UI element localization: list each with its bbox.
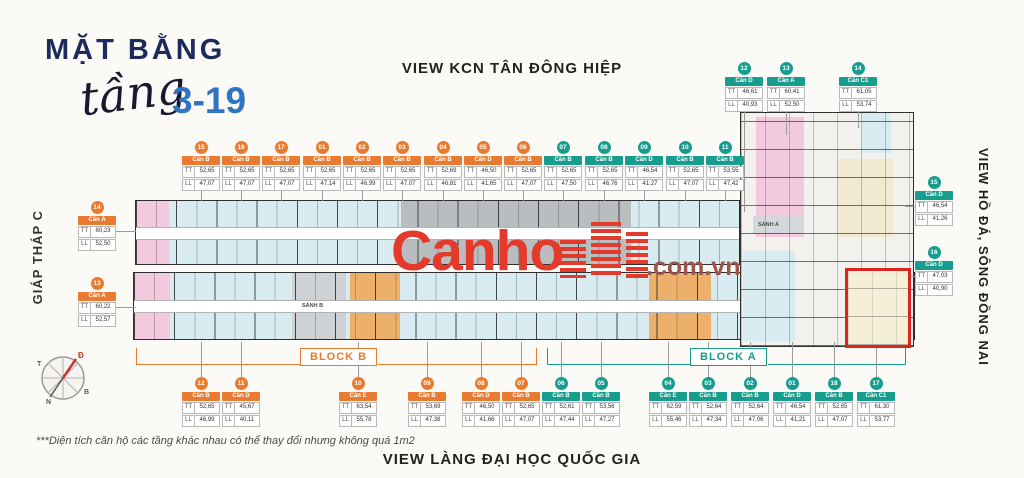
area-key: TT: [586, 167, 598, 177]
unit-area-row: TT52,65: [585, 166, 623, 178]
unit-area-row: TT46,54: [915, 201, 953, 213]
unit-number-badge: 15: [928, 176, 941, 189]
area-value: 53,74: [852, 101, 876, 111]
unit-label-11: 11Căn DTT45,67LL40,11: [222, 377, 260, 428]
unit-area-row: LL47,50: [544, 179, 582, 191]
unit-number-badge: 05: [595, 377, 608, 390]
area-key: TT: [816, 403, 828, 413]
area-value: 52,65: [275, 167, 299, 177]
area-key: TT: [768, 88, 780, 98]
area-key: TT: [465, 167, 477, 177]
connector-line: [241, 342, 242, 377]
unit-number-badge: 07: [515, 377, 528, 390]
unit-type: Căn E: [649, 392, 687, 401]
area-value: 55,46: [662, 416, 686, 426]
unit-number-badge: 07: [557, 141, 570, 154]
unit-number-badge: 09: [638, 141, 651, 154]
area-value: 52,65: [316, 167, 340, 177]
unit-type: Căn B: [343, 156, 381, 165]
area-value: 41,26: [928, 215, 952, 225]
unit-area-row: LL40,11: [222, 415, 260, 427]
area-key: TT: [79, 227, 91, 237]
unit-area-row: TT60,23: [78, 226, 116, 238]
unit-type: Căn D: [222, 392, 260, 401]
unit-number-badge: 15: [195, 141, 208, 154]
area-key: LL: [223, 416, 235, 426]
block-b-bracket: [378, 364, 536, 365]
area-value: 52,65: [396, 167, 420, 177]
area-value: 63,54: [352, 403, 376, 413]
area-value: 47,07: [195, 180, 219, 190]
compass-icon: Đ T N B: [34, 348, 92, 406]
area-value: 52,65: [356, 167, 380, 177]
area-value: 41,66: [475, 416, 499, 426]
area-key: TT: [626, 167, 638, 177]
area-key: TT: [583, 403, 595, 413]
unit-label-05: 05Căn BTT53,56LL47,27: [582, 377, 620, 428]
area-value: 41,27: [638, 180, 662, 190]
view-caption-bottom: VIEW LÀNG ĐẠI HỌC QUỐC GIA: [0, 451, 1024, 468]
unit-area-row: TT63,54: [339, 402, 377, 414]
area-key: LL: [409, 416, 421, 426]
area-value: 61,30: [870, 403, 894, 413]
area-value: 62,59: [662, 403, 686, 413]
unit-area-row: TT46,50: [462, 402, 500, 414]
area-value: 41,65: [477, 180, 501, 190]
unit-label-10: 10Căn ETT63,54LL55,78: [339, 377, 377, 428]
area-value: 46,54: [638, 167, 662, 177]
unit-area-row: TT60,41: [767, 87, 805, 99]
unit-type: Căn B: [815, 392, 853, 401]
unit-number-badge: 17: [275, 141, 288, 154]
unit-label-02: 02Căn BTT52,64LL47,06: [731, 377, 769, 428]
unit-label-03: 03Căn BTT52,64LL47,34: [689, 377, 727, 428]
area-key: TT: [840, 88, 852, 98]
floor-range: 3-19: [172, 80, 246, 122]
unit-label-06: 06Căn BTT52,61LL47,44: [542, 377, 580, 428]
area-value: 46,50: [475, 403, 499, 413]
block-a-bracket: [547, 348, 548, 365]
unit-number-badge: 01: [786, 377, 799, 390]
area-key: TT: [463, 403, 475, 413]
unit-type: Căn B: [502, 392, 540, 401]
area-value: 46,50: [477, 167, 501, 177]
area-value: 52,64: [702, 403, 726, 413]
unit-number-badge: 11: [719, 141, 732, 154]
unit-label-08: 08Căn DTT46,50LL41,66: [462, 377, 500, 428]
area-key: TT: [223, 403, 235, 413]
unit-label-08: 08Căn BTT52,65LL46,76: [585, 141, 623, 192]
unit-type: Căn B: [182, 156, 220, 165]
unit-number-badge: 12: [195, 377, 208, 390]
area-key: LL: [816, 416, 828, 426]
unit-area-row: TT52,65: [182, 166, 220, 178]
area-value: 53,55: [719, 167, 743, 177]
unit-area-row: LL41,21: [773, 415, 811, 427]
area-key: LL: [425, 180, 437, 190]
view-caption-left: GIÁP THÁP C: [30, 210, 45, 304]
unit-area-row: LL41,27: [625, 179, 663, 191]
area-key: LL: [840, 101, 852, 111]
blue-units-area: [743, 251, 795, 341]
unit-type: Căn B: [666, 156, 704, 165]
unit-type: Căn C1: [857, 392, 895, 401]
unit-label-10: 10Căn BTT52,65LL47,07: [666, 141, 704, 192]
area-value: 60,23: [91, 227, 115, 237]
unit-label-16: 16Căn BTT52,65LL47,07: [222, 141, 260, 192]
area-key: LL: [344, 180, 356, 190]
area-key: LL: [183, 180, 195, 190]
area-key: LL: [732, 416, 744, 426]
unit-type: Căn B: [582, 392, 620, 401]
area-key: LL: [505, 180, 517, 190]
unit-type: Căn A: [78, 216, 116, 225]
unit-area-row: TT45,67: [222, 402, 260, 414]
area-value: 46,99: [195, 416, 219, 426]
area-key: LL: [726, 101, 738, 111]
unit-number-badge: 04: [437, 141, 450, 154]
block-b-label: BLOCK B: [300, 348, 377, 366]
unit-area-row: TT52,64: [731, 402, 769, 414]
unit-area-row: TT52,65: [504, 166, 542, 178]
area-key: LL: [667, 180, 679, 190]
unit-label-11: 11Căn BTT53,55LL47,42: [706, 141, 744, 192]
area-value: 52,65: [517, 167, 541, 177]
unit-area-row: LL47,07: [222, 179, 260, 191]
area-key: LL: [690, 416, 702, 426]
area-value: 47,07: [515, 416, 539, 426]
unit-area-row: TT52,65: [262, 166, 300, 178]
unit-area-row: LL47,07: [383, 179, 421, 191]
area-key: LL: [650, 416, 662, 426]
wall-lines: [848, 271, 908, 345]
area-key: TT: [409, 403, 421, 413]
unit-label-17: 17Căn C1TT61,30LL53,77: [857, 377, 895, 428]
unit-area-row: LL46,99: [343, 179, 381, 191]
area-value: 52,50: [780, 101, 804, 111]
unit-type: Căn D: [625, 156, 663, 165]
area-key: LL: [183, 416, 195, 426]
area-key: LL: [503, 416, 515, 426]
unit-label-18: 18Căn BTT52,65LL47,07: [815, 377, 853, 428]
unit-area-row: TT52,61: [542, 402, 580, 414]
area-key: LL: [223, 180, 235, 190]
area-value: 52,50: [91, 240, 115, 250]
unit-type: Căn D: [915, 191, 953, 200]
area-key: LL: [545, 180, 557, 190]
unit-type: Căn B: [544, 156, 582, 165]
area-key: TT: [503, 403, 515, 413]
area-key: TT: [774, 403, 786, 413]
unit-area-row: LL47,14: [303, 179, 341, 191]
view-caption-right: VIEW HỒ ĐÁ, SÔNG ĐỒNG NAI: [976, 148, 991, 366]
unit-area-row: LL47,07: [815, 415, 853, 427]
unit-number-badge: 08: [475, 377, 488, 390]
area-key: LL: [340, 416, 352, 426]
unit-label-09: 09Căn BTT53,69LL47,38: [408, 377, 446, 428]
block-a-bracket: [768, 364, 905, 365]
unit-label-14: 14Căn ATT60,23LL52,50: [78, 201, 116, 252]
area-value: 52,65: [557, 167, 581, 177]
unit-label-04: 04Căn ETT62,59LL55,46: [649, 377, 687, 428]
area-value: 40,93: [738, 101, 762, 111]
area-value: 47,50: [557, 180, 581, 190]
area-key: LL: [79, 240, 91, 250]
svg-text:Đ: Đ: [78, 351, 84, 360]
area-key: LL: [463, 416, 475, 426]
connector-line: [601, 342, 602, 377]
svg-text:T: T: [37, 361, 42, 368]
unit-type: Căn D: [464, 156, 502, 165]
footnote: ***Diện tích căn hộ các tầng khác nhau c…: [36, 435, 415, 447]
unit-area-row: TT52,65: [303, 166, 341, 178]
area-key: LL: [916, 215, 928, 225]
unit-type: Căn E: [339, 392, 377, 401]
unit-number-badge: 04: [662, 377, 675, 390]
blue-units-area: [861, 113, 891, 153]
unit-area-row: LL46,76: [585, 179, 623, 191]
unit-number-badge: 10: [679, 141, 692, 154]
area-key: TT: [690, 403, 702, 413]
unit-label-15: 15Căn BTT52,65LL47,07: [182, 141, 220, 192]
unit-area-row: TT53,69: [408, 402, 446, 414]
unit-area-row: TT52,65: [182, 402, 220, 414]
view-caption-top: VIEW KCN TÂN ĐÔNG HIỆP: [0, 60, 1024, 77]
unit-label-12: 12Căn BTT52,65LL46,99: [182, 377, 220, 428]
area-value: 53,69: [421, 403, 445, 413]
area-key: TT: [263, 167, 275, 177]
unit-area-row: LL47,38: [408, 415, 446, 427]
unit-number-badge: 14: [91, 201, 104, 214]
area-key: TT: [916, 272, 928, 282]
area-key: TT: [505, 167, 517, 177]
unit-area-row: TT62,59: [649, 402, 687, 414]
unit-area-row: LL40,93: [725, 100, 763, 112]
unit-number-badge: 01: [316, 141, 329, 154]
area-key: LL: [465, 180, 477, 190]
unit-area-row: LL53,74: [839, 100, 877, 112]
unit-type: Căn B: [262, 156, 300, 165]
area-value: 47,27: [595, 416, 619, 426]
unit-type: Căn B: [504, 156, 542, 165]
area-key: LL: [768, 101, 780, 111]
unit-label-01: 01Căn BTT52,65LL47,14: [303, 141, 341, 192]
area-value: 40,11: [235, 416, 259, 426]
highlighted-unit: [845, 268, 911, 348]
unit-area-row: LL52,50: [767, 100, 805, 112]
area-key: TT: [223, 167, 235, 177]
unit-number-badge: 02: [356, 141, 369, 154]
area-value: 46,99: [356, 180, 380, 190]
area-key: LL: [384, 180, 396, 190]
area-key: TT: [707, 167, 719, 177]
area-value: 52,65: [598, 167, 622, 177]
unit-label-07: 07Căn BTT52,65LL47,50: [544, 141, 582, 192]
block-a-bracket: [905, 348, 906, 365]
area-key: LL: [916, 285, 928, 295]
area-value: 55,78: [352, 416, 376, 426]
unit-area-row: LL53,77: [857, 415, 895, 427]
connector-line: [521, 342, 522, 377]
unit-label-03: 03Căn BTT52,65LL47,07: [383, 141, 421, 192]
area-key: TT: [183, 403, 195, 413]
block-b-bracket: [136, 364, 300, 365]
connector-line: [116, 307, 136, 308]
unit-area-row: LL47,07: [504, 179, 542, 191]
unit-area-row: LL47,07: [666, 179, 704, 191]
area-value: 52,65: [679, 167, 703, 177]
unit-area-row: TT61,30: [857, 402, 895, 414]
area-key: TT: [650, 403, 662, 413]
svg-text:N: N: [46, 399, 51, 406]
unit-number-badge: 09: [421, 377, 434, 390]
area-key: LL: [626, 180, 638, 190]
unit-area-row: TT52,64: [689, 402, 727, 414]
unit-area-row: LL40,90: [915, 284, 953, 296]
watermark-building-icon: [560, 220, 652, 278]
connector-line: [834, 342, 835, 377]
area-key: TT: [340, 403, 352, 413]
unit-area-row: LL46,81: [424, 179, 462, 191]
area-value: 52,61: [555, 403, 579, 413]
area-value: 46,76: [598, 180, 622, 190]
unit-type: Căn B: [731, 392, 769, 401]
unit-area-row: LL41,26: [915, 214, 953, 226]
unit-area-row: LL55,78: [339, 415, 377, 427]
unit-label-04: 04Căn BTT52,69LL46,81: [424, 141, 462, 192]
unit-area-row: LL47,42: [706, 179, 744, 191]
unit-area-row: TT53,56: [582, 402, 620, 414]
area-value: 47,07: [679, 180, 703, 190]
unit-type: Căn B: [689, 392, 727, 401]
area-key: LL: [304, 180, 316, 190]
unit-number-badge: 03: [396, 141, 409, 154]
unit-area-row: TT46,50: [464, 166, 502, 178]
area-value: 52,65: [195, 167, 219, 177]
unit-area-row: LL47,44: [542, 415, 580, 427]
area-value: 46,61: [738, 88, 762, 98]
unit-area-row: TT53,55: [706, 166, 744, 178]
area-value: 47,34: [702, 416, 726, 426]
area-value: 47,38: [421, 416, 445, 426]
area-value: 61,05: [852, 88, 876, 98]
area-key: TT: [545, 167, 557, 177]
unit-number-badge: 13: [91, 277, 104, 290]
unit-label-05: 05Căn DTT46,50LL41,65: [464, 141, 502, 192]
unit-type: Căn B: [408, 392, 446, 401]
unit-area-row: TT47,03: [915, 271, 953, 283]
unit-label-01: 01Căn DTT46,54LL41,21: [773, 377, 811, 428]
unit-number-badge: 06: [517, 141, 530, 154]
unit-type: Căn B: [383, 156, 421, 165]
area-key: TT: [858, 403, 870, 413]
area-value: 47,44: [555, 416, 579, 426]
area-value: 41,21: [786, 416, 810, 426]
area-key: TT: [183, 167, 195, 177]
unit-area-row: LL52,50: [78, 239, 116, 251]
unit-area-row: LL41,66: [462, 415, 500, 427]
unit-area-row: TT61,05: [839, 87, 877, 99]
area-value: 52,64: [744, 403, 768, 413]
unit-area-row: TT52,65: [666, 166, 704, 178]
unit-type: Căn B: [182, 392, 220, 401]
area-value: 46,54: [928, 202, 952, 212]
lobby-a-label: SẢNH A: [758, 222, 779, 228]
unit-label-06: 06Căn BTT52,65LL47,07: [504, 141, 542, 192]
area-value: 47,06: [744, 416, 768, 426]
unit-number-badge: 16: [235, 141, 248, 154]
unit-label-13: 13Căn ATT60,22LL52,57: [78, 277, 116, 328]
unit-area-row: TT60,22: [78, 302, 116, 314]
area-key: LL: [707, 180, 719, 190]
unit-type: Căn A: [767, 77, 805, 86]
unit-area-row: TT52,69: [424, 166, 462, 178]
unit-type: Căn C1: [839, 77, 877, 86]
unit-area-row: TT52,65: [815, 402, 853, 414]
area-key: LL: [79, 316, 91, 326]
area-key: LL: [858, 416, 870, 426]
connector-line: [116, 231, 136, 232]
connector-line: [427, 342, 428, 377]
area-key: TT: [667, 167, 679, 177]
area-value: 47,03: [928, 272, 952, 282]
area-value: 45,67: [235, 403, 259, 413]
area-value: 52,69: [437, 167, 461, 177]
unit-number-badge: 10: [352, 377, 365, 390]
area-value: 52,65: [195, 403, 219, 413]
lobby-b-label: SẢNH B: [302, 303, 323, 309]
unit-type: Căn D: [915, 261, 953, 270]
unit-type: Căn B: [542, 392, 580, 401]
unit-area-row: LL47,07: [502, 415, 540, 427]
area-key: TT: [79, 303, 91, 313]
area-key: LL: [543, 416, 555, 426]
unit-label-07: 07Căn BTT52,65LL47,07: [502, 377, 540, 428]
block-b-bracket: [136, 348, 137, 365]
area-key: LL: [774, 416, 786, 426]
unit-type: Căn D: [462, 392, 500, 401]
area-value: 47,42: [719, 180, 743, 190]
unit-label-17: 17Căn BTT52,65LL47,07: [262, 141, 300, 192]
unit-number-badge: 17: [870, 377, 883, 390]
unit-area-row: LL47,07: [262, 179, 300, 191]
area-value: 52,65: [235, 167, 259, 177]
connector-line: [668, 342, 669, 377]
connector-line: [561, 342, 562, 377]
unit-area-row: TT52,65: [222, 166, 260, 178]
area-value: 46,81: [437, 180, 461, 190]
unit-type: Căn B: [706, 156, 744, 165]
unit-label-09: 09Căn DTT46,54LL41,27: [625, 141, 663, 192]
area-value: 60,22: [91, 303, 115, 313]
unit-type: Căn B: [424, 156, 462, 165]
connector-line: [481, 342, 482, 377]
unit-number-badge: 06: [555, 377, 568, 390]
area-value: 47,07: [275, 180, 299, 190]
connector-line: [744, 109, 745, 212]
unit-type: Căn D: [773, 392, 811, 401]
area-value: 47,07: [517, 180, 541, 190]
area-value: 52,65: [515, 403, 539, 413]
area-value: 52,65: [828, 403, 852, 413]
svg-text:B: B: [84, 389, 89, 396]
area-value: 46,54: [786, 403, 810, 413]
unit-area-row: TT52,65: [343, 166, 381, 178]
unit-area-row: TT46,61: [725, 87, 763, 99]
unit-area-row: TT52,65: [502, 402, 540, 414]
watermark-suffix: .com.vn: [646, 253, 740, 282]
area-key: TT: [425, 167, 437, 177]
